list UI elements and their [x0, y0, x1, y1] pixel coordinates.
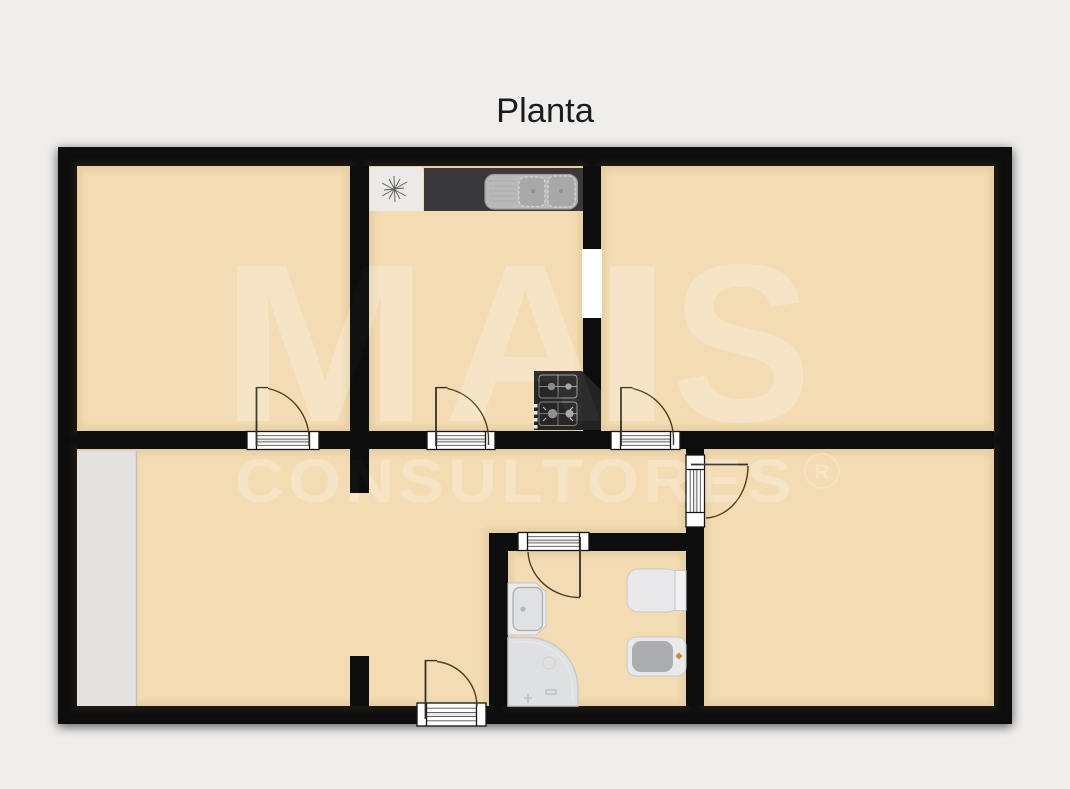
svg-text:CONSULTORES: CONSULTORES: [235, 447, 796, 515]
svg-text:R: R: [814, 461, 829, 484]
svg-text:Planta: Planta: [496, 92, 595, 130]
svg-text:M: M: [220, 218, 429, 469]
svg-text:S: S: [672, 218, 812, 469]
svg-text:I: I: [590, 218, 675, 470]
svg-text:A: A: [444, 217, 607, 469]
